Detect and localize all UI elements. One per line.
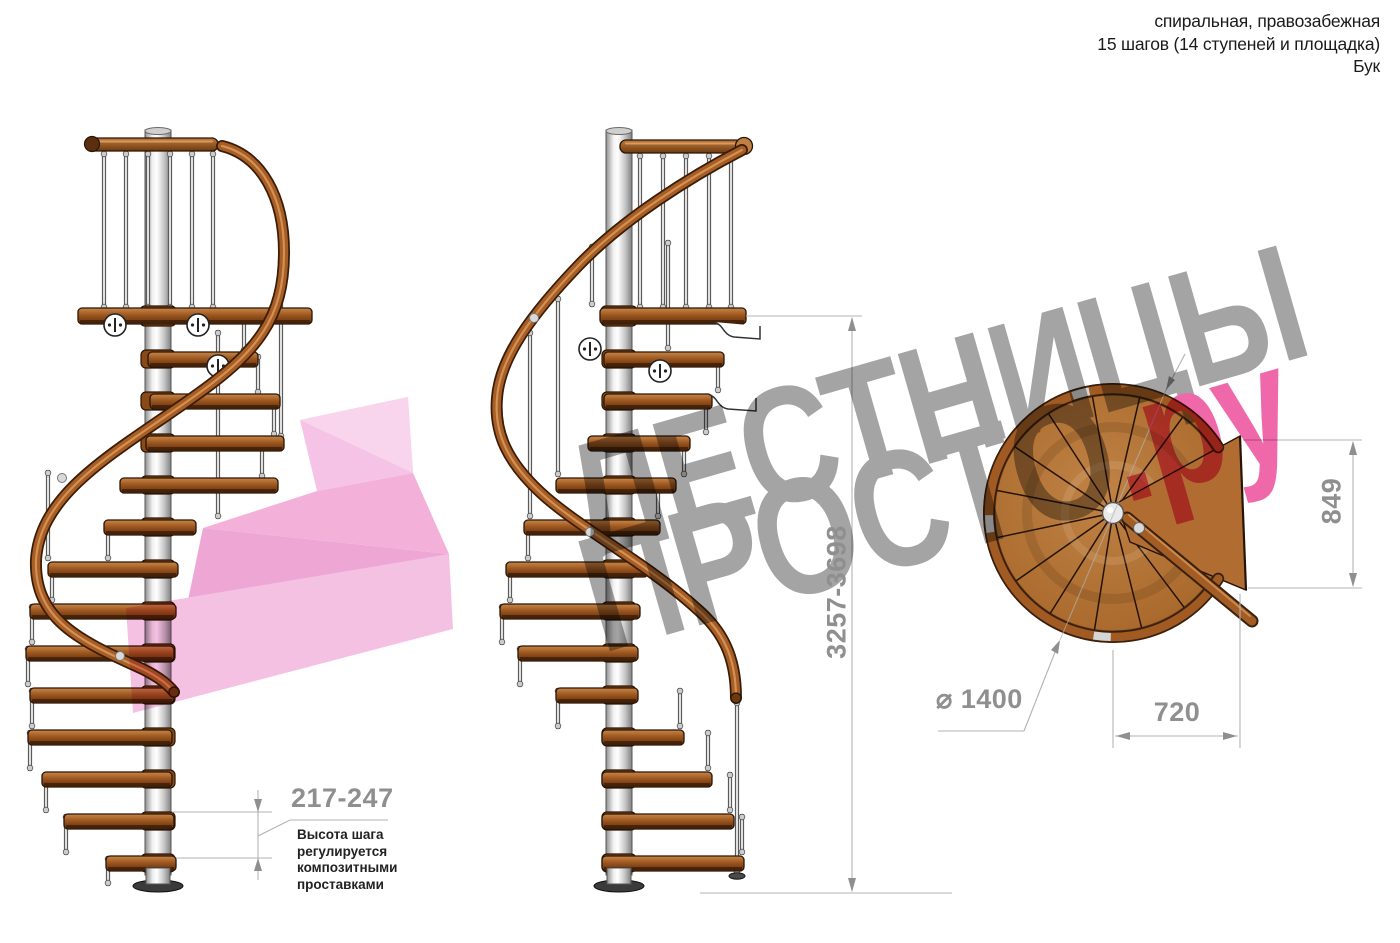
title-line-material: Бук bbox=[1097, 55, 1380, 78]
arrow-down-icon bbox=[848, 878, 856, 892]
note-line: композитными bbox=[297, 860, 397, 877]
arrow-up-right-icon bbox=[1051, 640, 1060, 654]
step-height-label: 217-247 bbox=[291, 783, 394, 814]
arrow-right-icon bbox=[1223, 732, 1237, 740]
title-line-steps: 15 шагов (14 ступеней и площадка) bbox=[1097, 33, 1380, 56]
note-line: Высота шага bbox=[297, 827, 397, 844]
note-line: проставками bbox=[297, 877, 397, 894]
note-line: регулируется bbox=[297, 844, 397, 861]
landing-width-label: 720 bbox=[1154, 697, 1201, 728]
title-block: спиральная, правозабежная 15 шагов (14 с… bbox=[1097, 10, 1380, 78]
arrow-left-icon bbox=[1116, 732, 1130, 740]
arrow-up-icon bbox=[254, 858, 262, 871]
total-height-label: 3257-3698 bbox=[822, 525, 853, 659]
landing-height-label: 849 bbox=[1317, 478, 1348, 525]
staircase-side-view-2 bbox=[497, 128, 760, 893]
step-height-note: Высота шага регулируется композитными пр… bbox=[297, 827, 397, 893]
technical-drawing bbox=[0, 0, 1400, 943]
arrow-down-left-icon bbox=[1166, 376, 1175, 390]
title-line-type: спиральная, правозабежная bbox=[1097, 10, 1380, 33]
arrow-down-icon bbox=[1349, 573, 1357, 587]
staircase-top-view bbox=[984, 384, 1252, 642]
diameter-label: ⌀ 1400 bbox=[936, 684, 1023, 715]
arrow-up-icon bbox=[1349, 441, 1357, 455]
drawing-canvas: ЛЕСТНИЦЫ ПРОСТО.ру спиральная, правозабе… bbox=[0, 0, 1400, 943]
staircase-side-view-1 bbox=[25, 128, 312, 893]
arrow-down-icon bbox=[254, 799, 262, 812]
arrow-up-icon bbox=[848, 317, 856, 331]
